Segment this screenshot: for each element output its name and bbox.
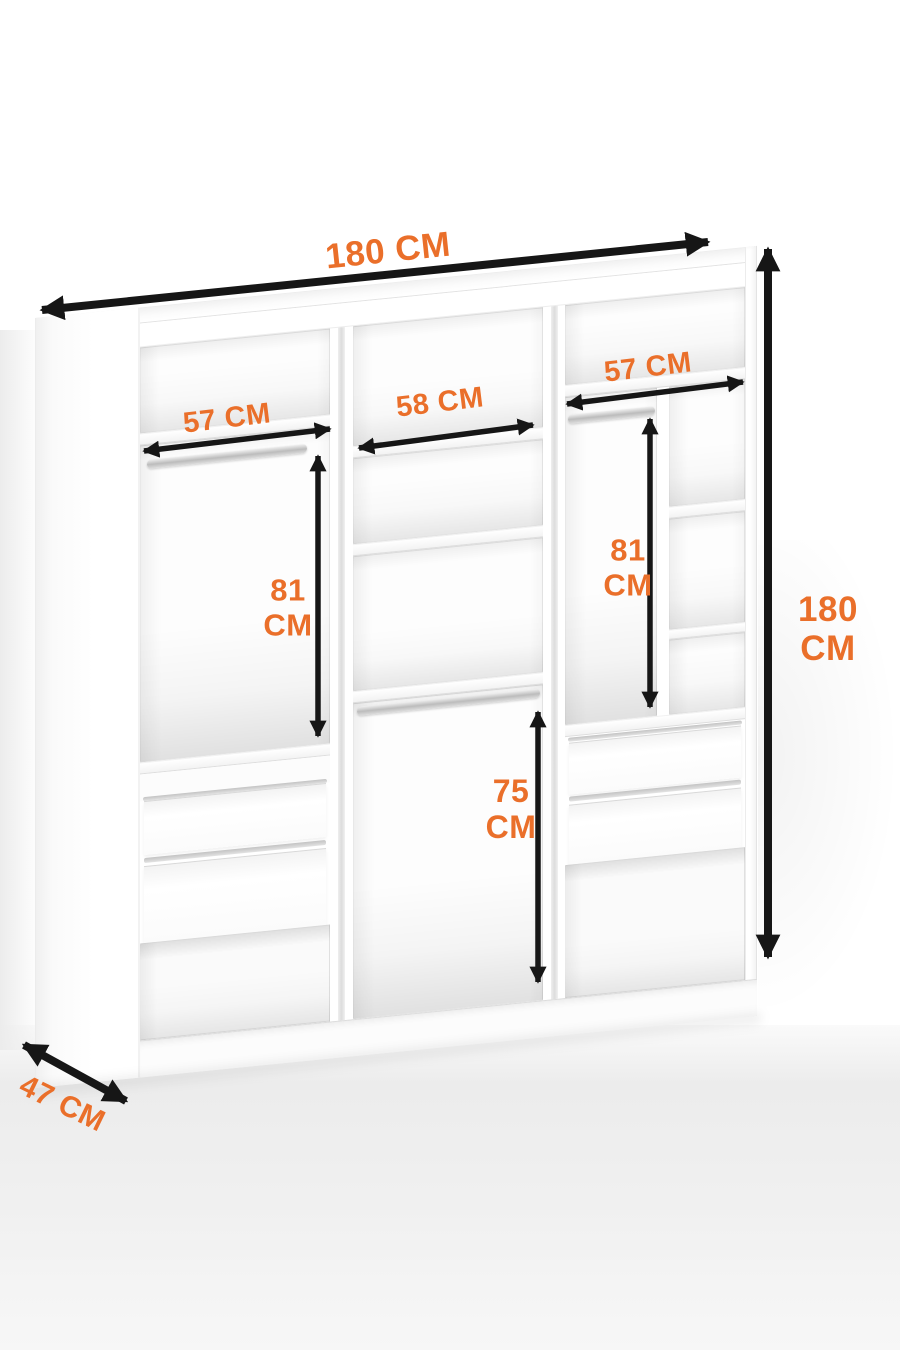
- left-side-panel: [35, 308, 140, 1088]
- dim-value: 81: [603, 533, 652, 568]
- dim-unit: CM: [603, 568, 652, 603]
- open-compartment: [565, 847, 745, 998]
- cubby: [669, 511, 745, 630]
- compartment: [353, 307, 543, 446]
- dim-unit: CM: [263, 608, 312, 643]
- open-compartment: [140, 925, 330, 1041]
- compartment: [353, 537, 543, 691]
- cubby: [669, 632, 745, 715]
- hanging-compartment: [353, 684, 543, 1019]
- panel-gap: [551, 306, 558, 1000]
- dim-value: 81: [263, 573, 312, 608]
- right-side-panel: [745, 246, 757, 1017]
- dim-label-right-hanging-height: 81 CM: [603, 533, 652, 602]
- dim-value: 180: [798, 590, 858, 629]
- dim-value: 75: [486, 774, 537, 810]
- panel-gap: [338, 327, 345, 1021]
- dim-unit: CM: [486, 810, 537, 846]
- background-shading-left: [0, 330, 40, 1050]
- cubby: [669, 379, 745, 507]
- dim-label-height: 180 CM: [798, 590, 858, 668]
- dim-unit: CM: [798, 629, 858, 668]
- product-dimension-image: 180 CM 180 CM 57 CM 58 CM 57 CM 81 CM 81…: [0, 0, 900, 1350]
- dim-label-top-width: 180 CM: [323, 225, 452, 278]
- dim-label-center-hanging-height: 75 CM: [486, 774, 537, 846]
- dim-label-left-hanging-height: 81 CM: [263, 573, 312, 642]
